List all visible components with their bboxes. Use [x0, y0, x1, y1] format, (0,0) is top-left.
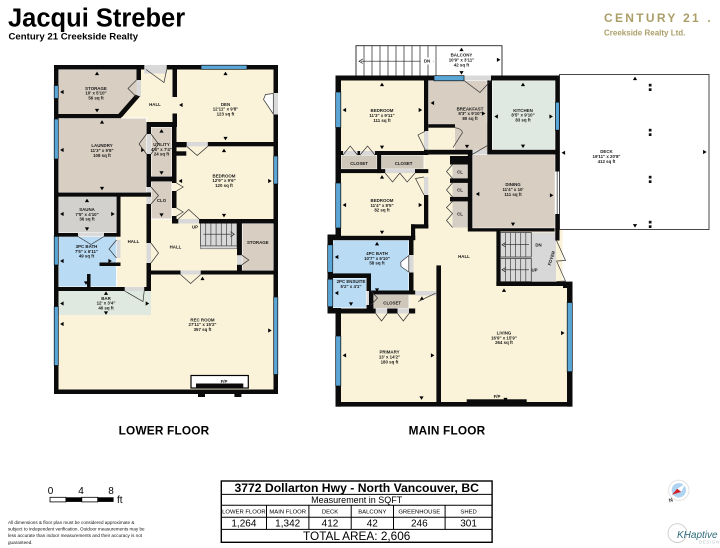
svg-text:CENTURY 21: CENTURY 21 [604, 11, 701, 25]
svg-text:CL: CL [457, 212, 463, 217]
svg-text:GREENHOUSE: GREENHOUSE [398, 510, 440, 516]
svg-text:123 sq ft: 123 sq ft [217, 112, 235, 117]
svg-text:3772 Dollarton Hwy - North Van: 3772 Dollarton Hwy - North Vancouver, BC [234, 481, 479, 495]
svg-text:CL: CL [457, 188, 463, 193]
svg-text:4: 4 [78, 486, 84, 497]
svg-text:5'2" x 4'1": 5'2" x 4'1" [341, 284, 362, 289]
svg-text:0: 0 [48, 486, 54, 497]
svg-text:83 sq ft: 83 sq ft [515, 117, 531, 122]
svg-text:UP: UP [192, 225, 198, 230]
svg-text:TOTAL AREA: 2,606: TOTAL AREA: 2,606 [303, 529, 411, 543]
svg-text:412 sq ft: 412 sq ft [598, 159, 616, 164]
svg-text:STORAGE: STORAGE [247, 240, 269, 245]
svg-text:less accurate than indoor meas: less accurate than indoor measurements a… [8, 533, 143, 538]
svg-text:264 sq ft: 264 sq ft [495, 340, 513, 345]
svg-text:F/P: F/P [221, 379, 228, 384]
svg-text:246: 246 [411, 518, 428, 529]
svg-text:108 sq ft: 108 sq ft [93, 153, 111, 158]
svg-text:412: 412 [322, 518, 339, 529]
svg-text:CLOSET: CLOSET [383, 300, 401, 305]
svg-text:111 sq ft: 111 sq ft [504, 192, 522, 197]
svg-text:UP: UP [531, 268, 537, 273]
svg-text:40 sq ft: 40 sq ft [98, 306, 114, 311]
svg-text:ft: ft [117, 495, 123, 506]
svg-text:42: 42 [367, 518, 379, 529]
svg-text:guaranteed.: guaranteed. [8, 540, 33, 545]
svg-text:357 sq ft: 357 sq ft [194, 327, 212, 332]
svg-text:All dimensions & floor plan mu: All dimensions & floor plan must be cons… [8, 520, 134, 525]
svg-text:Measurement in SQFT: Measurement in SQFT [311, 495, 403, 505]
svg-text:180 sq ft: 180 sq ft [381, 359, 399, 364]
svg-text:F/P: F/P [494, 394, 501, 399]
svg-text:56 sq ft: 56 sq ft [88, 95, 104, 100]
svg-text:120 sq ft: 120 sq ft [215, 183, 233, 188]
svg-text:58 sq ft: 58 sq ft [369, 261, 385, 266]
svg-text:80 sq ft: 80 sq ft [462, 116, 478, 121]
svg-text:36 sq ft: 36 sq ft [79, 217, 95, 222]
svg-text:Creekside Realty Ltd.: Creekside Realty Ltd. [604, 29, 685, 38]
svg-text:49 sq ft: 49 sq ft [79, 254, 95, 259]
svg-text:BALCONY: BALCONY [358, 510, 386, 516]
svg-text:MAIN FLOOR: MAIN FLOOR [269, 510, 306, 516]
svg-text:HALL: HALL [458, 254, 470, 259]
svg-text:MAIN FLOOR: MAIN FLOOR [409, 424, 486, 438]
svg-text:DN: DN [424, 58, 430, 63]
svg-text:301: 301 [460, 518, 477, 529]
svg-text:82 sq ft: 82 sq ft [374, 208, 390, 213]
svg-text:24 sq ft: 24 sq ft [154, 152, 170, 157]
svg-text:HALL: HALL [149, 102, 161, 107]
svg-text:8: 8 [108, 486, 114, 497]
svg-text:1,264: 1,264 [231, 518, 256, 529]
svg-text:SHED: SHED [460, 510, 476, 516]
svg-text:111 sq ft: 111 sq ft [373, 118, 391, 123]
svg-text:CLOSET: CLOSET [395, 161, 413, 166]
svg-text:42 sq ft: 42 sq ft [454, 62, 470, 67]
svg-text:Jacqui Streber: Jacqui Streber [8, 5, 185, 33]
svg-text:subject to independent verific: subject to independent verification. Out… [8, 527, 145, 532]
svg-text:LOWER FLOOR: LOWER FLOOR [222, 510, 266, 516]
svg-text:DESIGN: DESIGN [699, 540, 720, 545]
svg-text:CLOSET: CLOSET [350, 161, 368, 166]
svg-text:CL: CL [457, 169, 463, 174]
svg-text:CLO: CLO [157, 198, 167, 203]
svg-text:1,342: 1,342 [275, 518, 300, 529]
svg-text:HALL: HALL [170, 245, 182, 250]
svg-text:DN: DN [535, 243, 541, 248]
svg-text:LOWER FLOOR: LOWER FLOOR [119, 424, 210, 438]
svg-text:DECK: DECK [322, 510, 338, 516]
svg-text:HALL: HALL [128, 239, 140, 244]
svg-text:Century 21 Creekside Realty: Century 21 Creekside Realty [9, 32, 139, 43]
